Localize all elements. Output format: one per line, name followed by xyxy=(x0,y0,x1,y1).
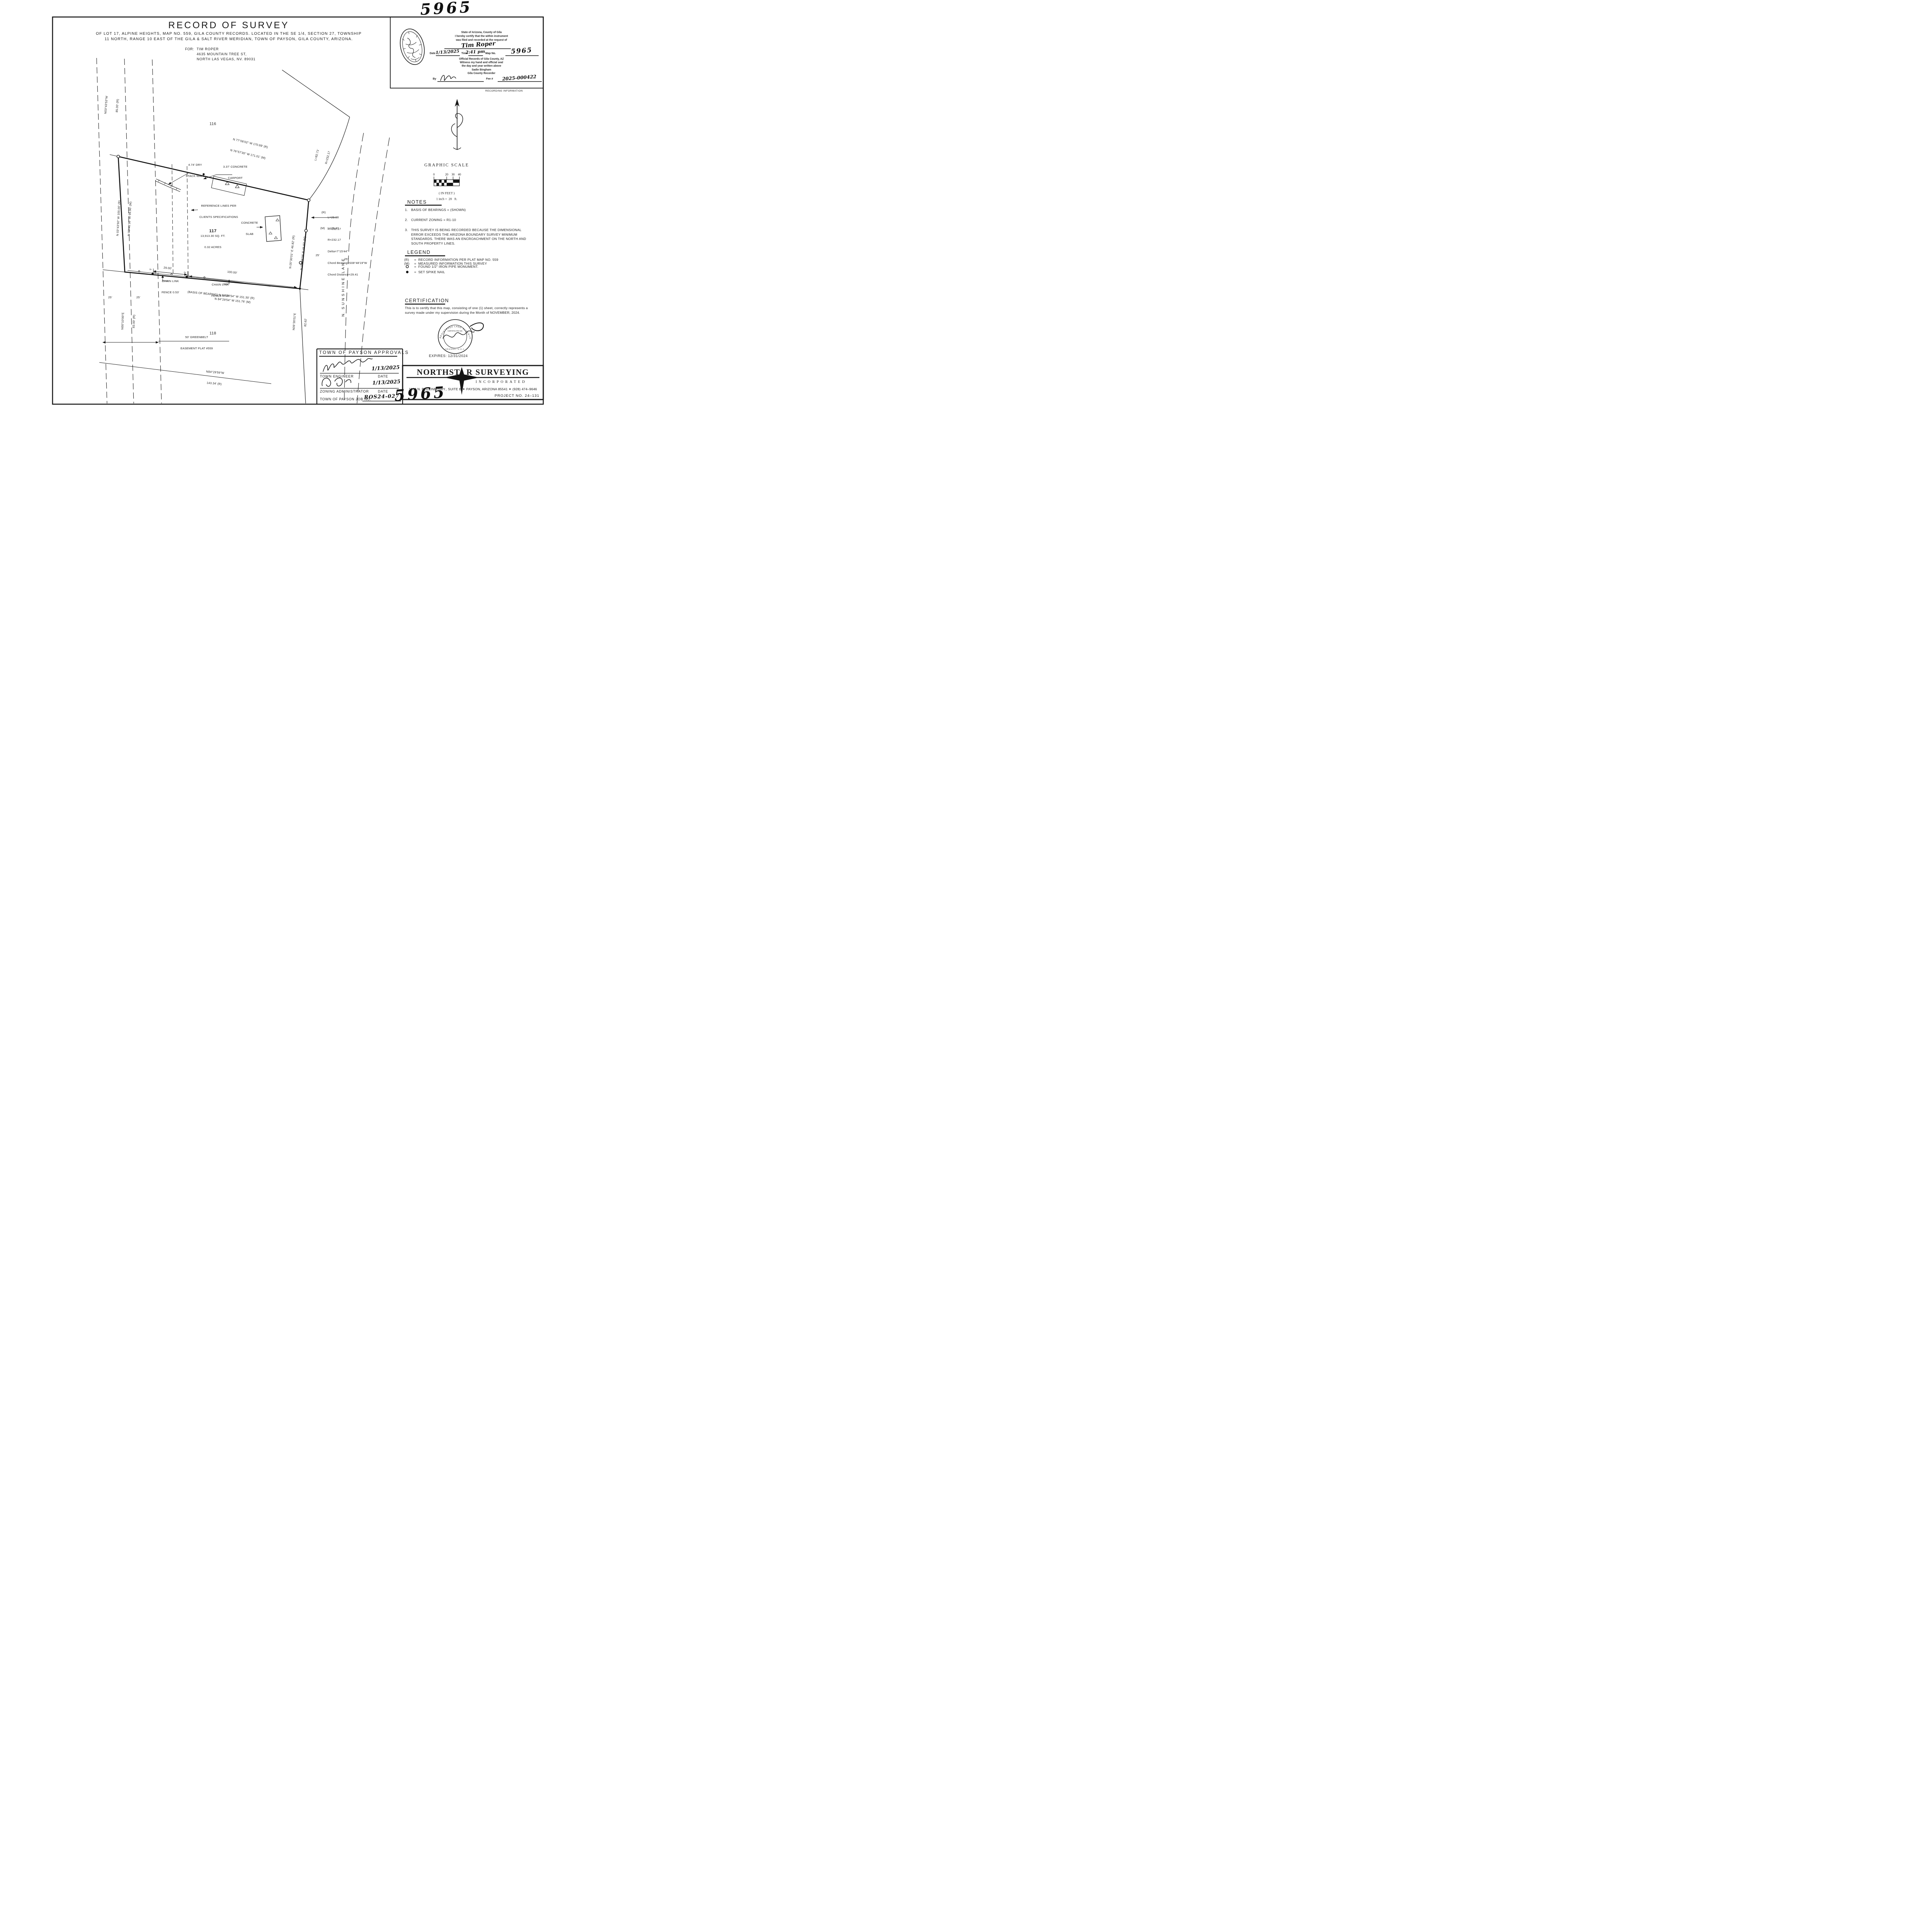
engineer-date-label: DATE xyxy=(378,374,388,379)
firm-name-pre: NORTHST xyxy=(417,367,460,377)
stamp-fee-label: Fee # xyxy=(486,77,493,81)
zoning-date-label: DATE xyxy=(378,389,388,394)
legend-spike-nail-icon xyxy=(406,271,408,273)
reference-line2: CLIENTS SPECIFICATIONS xyxy=(199,215,238,219)
note-item-3: 3. THIS SURVEY IS BEING RECORDED BECAUSE… xyxy=(405,228,528,246)
page-title: RECORD OF SURVEY xyxy=(113,19,345,31)
carport-line1: 3.37' CONCRETE xyxy=(223,165,248,168)
client-address2: NORTH LAS VEGAS, NV. 89031 xyxy=(197,57,255,62)
road-curve-l: L=82.71' xyxy=(313,148,320,162)
stamp-mapno-value: 5965 xyxy=(511,46,533,56)
seal-state-text: ARIZONA, U.S.A. xyxy=(445,348,466,350)
note-1-text: BASIS OF BEARINGS = (SHOWN) xyxy=(411,208,466,212)
road-curve-r: R=232.17 xyxy=(324,151,331,165)
reference-line1: REFERENCE LINES PER xyxy=(199,204,238,207)
certification-heading: CERTIFICATION xyxy=(405,298,449,304)
scale-tick-0: 0 xyxy=(433,173,435,176)
certification-body: This is to certify that this map, consis… xyxy=(405,306,528,315)
scale-tick-30: 30 xyxy=(452,173,455,176)
stamp-cert-line1: State of Arizona, County of Gila xyxy=(461,31,502,34)
note-1-number: 1. xyxy=(405,208,411,212)
graphic-scale-bar: 0 20 30 40 xyxy=(433,173,461,186)
graphic-scale-ratio: 1 inch = 20 ft. xyxy=(436,197,457,201)
greenbelt-line1: 50' GREENBELT xyxy=(180,335,213,339)
road-segment-bearing: N05°30'01"E 82.62' xyxy=(284,312,311,331)
recorder-by-signature xyxy=(440,75,456,81)
legend-measured-sym: (M) xyxy=(404,262,410,266)
greenbelt-line2: EASEMENT PLAT #559 xyxy=(180,347,213,350)
greenbelt-half-w: 25' xyxy=(108,296,112,299)
west-bearing-measured: N 03°41'36" W 99.90' (M) xyxy=(127,201,133,236)
curve-record-tag: (R) xyxy=(321,211,326,214)
fence-w-line2: FENCE 0.53' xyxy=(162,291,179,294)
for-label: FOR: xyxy=(185,47,194,52)
area-acres: 0.32 ACRES xyxy=(201,245,225,249)
recording-info-caption: RECORDING INFORMATION xyxy=(485,90,523,93)
west-south-bearing: N00°10'00"E 83.00' (R) xyxy=(113,312,140,330)
stamp-by-label: By xyxy=(433,77,436,81)
greenbelt-easement-label: 50' GREENBELT EASEMENT PLAT #559 xyxy=(180,328,213,354)
legend-found-text: = FOUND 1/2" IRON PIPE MONUMENT. xyxy=(414,265,478,269)
map-number-handwritten-bottom: 5965 xyxy=(394,382,447,406)
lot118-south-line xyxy=(99,362,271,384)
stamp-cert-line2: I hereby certify that the within instrum… xyxy=(455,34,508,38)
stamp-recorder-name: Sadie Bingham xyxy=(472,68,492,71)
east-bearing-measured: N 05°38'28" E 46.82' (M) xyxy=(299,236,307,270)
note-3-text: THIS SURVEY IS BEING RECORDED BECAUSE TH… xyxy=(411,228,528,246)
road-half-width-w: 25' xyxy=(316,253,320,257)
dry-stack-wall xyxy=(155,179,181,192)
greenbelt-half-e: 25' xyxy=(136,296,140,299)
subtitle-line2: 11 NORTH, RANGE 10 EAST OF THE GILA & SA… xyxy=(55,37,403,42)
certification-expires: EXPIRES: 12/31/2024 xyxy=(429,354,468,359)
job-number-label: TOWN OF PAYSON JOB NO. xyxy=(320,397,371,402)
zoning-admin-signature xyxy=(322,378,351,386)
east-boundary-bearing: N 05°30'01" E 46.82' (R) N 05°38'28" E 4… xyxy=(281,234,311,270)
seal-cert-label: CERTIFICATE NO. xyxy=(447,330,463,332)
firm-address: 1100 N. BEELINE HWY., SUITE B ✦ PAYSON, … xyxy=(403,387,543,391)
stamp-recorder-title: Gila County Recorder xyxy=(468,71,495,75)
curve-measured-r: R=232.17 xyxy=(328,238,367,242)
carport-line2: CARPORT xyxy=(223,176,248,180)
scale-tick-20: 20 xyxy=(445,173,448,176)
dry-wall-line2: STACK WALL xyxy=(186,174,205,178)
stamp-official-line2: Witness my hand and official seal xyxy=(460,61,503,64)
lot-117-area: 13,913.30 SQ. FT. 0.32 ACRES xyxy=(201,226,225,253)
lot118-length-text: 143.34' (R) xyxy=(205,381,223,386)
west-north-bearing-text: N03°43'53"W xyxy=(104,96,109,114)
concrete-slab-shape xyxy=(265,216,281,241)
stamp-official-line3: the day and year written above xyxy=(462,64,501,68)
lot-116-label: 116 xyxy=(209,122,216,127)
street-name-label: N. S U N S H I N E L A N E xyxy=(341,259,346,317)
graphic-scale-units: ( IN FEET ) xyxy=(439,191,454,195)
fence-e-line1: CHAIN LINK xyxy=(211,282,229,286)
stamp-time-value: 2:41 pm xyxy=(466,49,485,56)
client-name: TIM ROPER xyxy=(197,47,219,52)
dry-stack-wall-label: 4.74' DRY STACK WALL xyxy=(186,155,205,182)
curve-measured-tag: (M) xyxy=(320,226,325,230)
west-south-bearing-text: N00°10'00"E xyxy=(121,312,125,330)
notes-heading: NOTES xyxy=(407,199,427,205)
engineer-label: TOWN ENGINEER xyxy=(320,374,354,379)
concrete-slab-label: CONCRETE SLAB xyxy=(241,213,258,240)
map-number-handwritten-top: 5965 xyxy=(420,0,473,20)
lot118-south-bearing: N84°29'59"W 143.34' (R) xyxy=(205,362,225,390)
seal-ribbon xyxy=(470,323,483,330)
west-south-length-text: 83.00' (R) xyxy=(132,313,136,330)
road-length-text: 82.62' xyxy=(303,314,308,331)
curve-measured-delta: Delta=7°15'44" xyxy=(328,250,367,253)
firm-name: NORTHSTR SURVEYING xyxy=(403,367,543,378)
curve-measured-data: L=29.43 R=232.17 Delta=7°15'44" Chord Be… xyxy=(328,219,367,281)
note-item-2: 2. CURRENT ZONING = R1-10 xyxy=(405,218,532,222)
west-north-length-text: 85.00' (R) xyxy=(115,97,120,115)
curve-measured-l: L=29.43 xyxy=(328,226,367,230)
area-sqft: 13,913.30 SQ. FT. xyxy=(201,234,225,238)
legend-heading: LEGEND xyxy=(407,249,430,255)
north-bearing-record: N 77°06'02" W 170.69' (R) xyxy=(233,137,269,149)
north-arrow-icon xyxy=(451,99,463,150)
stamp-mapno-label: Map No. xyxy=(485,52,496,55)
west-north-bearing: N03°43'53"W 85.00' (R) xyxy=(96,95,123,115)
firm-project-number: PROJECT NO. 24–131 xyxy=(481,394,539,398)
zoning-label: ZONING ADMINISTRATOR xyxy=(320,389,369,394)
lot118-bearing-text: N84°29'59"W xyxy=(206,369,224,375)
job-number-value: ROS24-027 xyxy=(364,393,400,401)
road-bearing-text: N05°30'01"E xyxy=(292,313,297,330)
east-bearing-record: N 05°30'01" E 46.82' (R) xyxy=(288,235,296,269)
fence-west-label: CHAIN LINK FENCE 0.53' xyxy=(162,272,179,298)
note-item-1: 1. BASIS OF BEARINGS = (SHOWN) xyxy=(405,208,532,212)
carport-label: 3.37' CONCRETE CARPORT xyxy=(223,157,248,184)
scale-tick-40: 40 xyxy=(458,173,461,176)
stamp-official-line1: Official Records of Gila County, AZ xyxy=(459,57,504,61)
dry-wall-line1: 4.74' DRY xyxy=(186,163,205,167)
curve-chord-bearing: Chord Bearing=S08°48'19"W xyxy=(328,261,367,265)
note-3-number: 3. xyxy=(405,228,411,246)
survey-sheet: 0 20 30 40 REGISTERED LAND SURVEYOR CERT… xyxy=(0,0,556,417)
reference-lines-label: REFERENCE LINES PER CLIENTS SPECIFICATIO… xyxy=(199,196,238,223)
firm-incorporated: INCORPORATED xyxy=(472,380,530,384)
slab-line2: SLAB xyxy=(241,232,258,236)
slab-line1: CONCRETE xyxy=(241,221,258,224)
west-bearing-record: N 03°43'50" W 100.00' (R) xyxy=(116,200,121,236)
west-mid-bearing: N 03°43'50" W 100.00' (R) N 03°41'36" W … xyxy=(108,200,136,237)
subtitle-line1: OF LOT 17, ALPINE HEIGHTS, MAP NO. 559, … xyxy=(55,31,403,36)
note-2-number: 2. xyxy=(405,218,411,222)
graphic-scale-title: GRAPHIC SCALE xyxy=(424,163,469,168)
client-address1: 4635 MOUNTAIN TREE ST, xyxy=(197,52,247,57)
fence-w-line1: CHAIN LINK xyxy=(162,279,179,283)
stamp-date-label: Date xyxy=(430,52,435,55)
town-engineer-signature xyxy=(323,359,372,372)
firm-name-post: R SURVEYING xyxy=(466,367,529,377)
legend-set-text: = SET SPIKE NAIL xyxy=(414,270,445,274)
approvals-heading: TOWN OF PAYSON APPROVALS xyxy=(319,350,409,356)
dim-29: 29.00' xyxy=(163,266,172,270)
curve-chord-distance: Chord Distance=29.41 xyxy=(328,273,367,277)
note-2-text: CURRENT ZONING = R1-10 xyxy=(411,218,456,222)
